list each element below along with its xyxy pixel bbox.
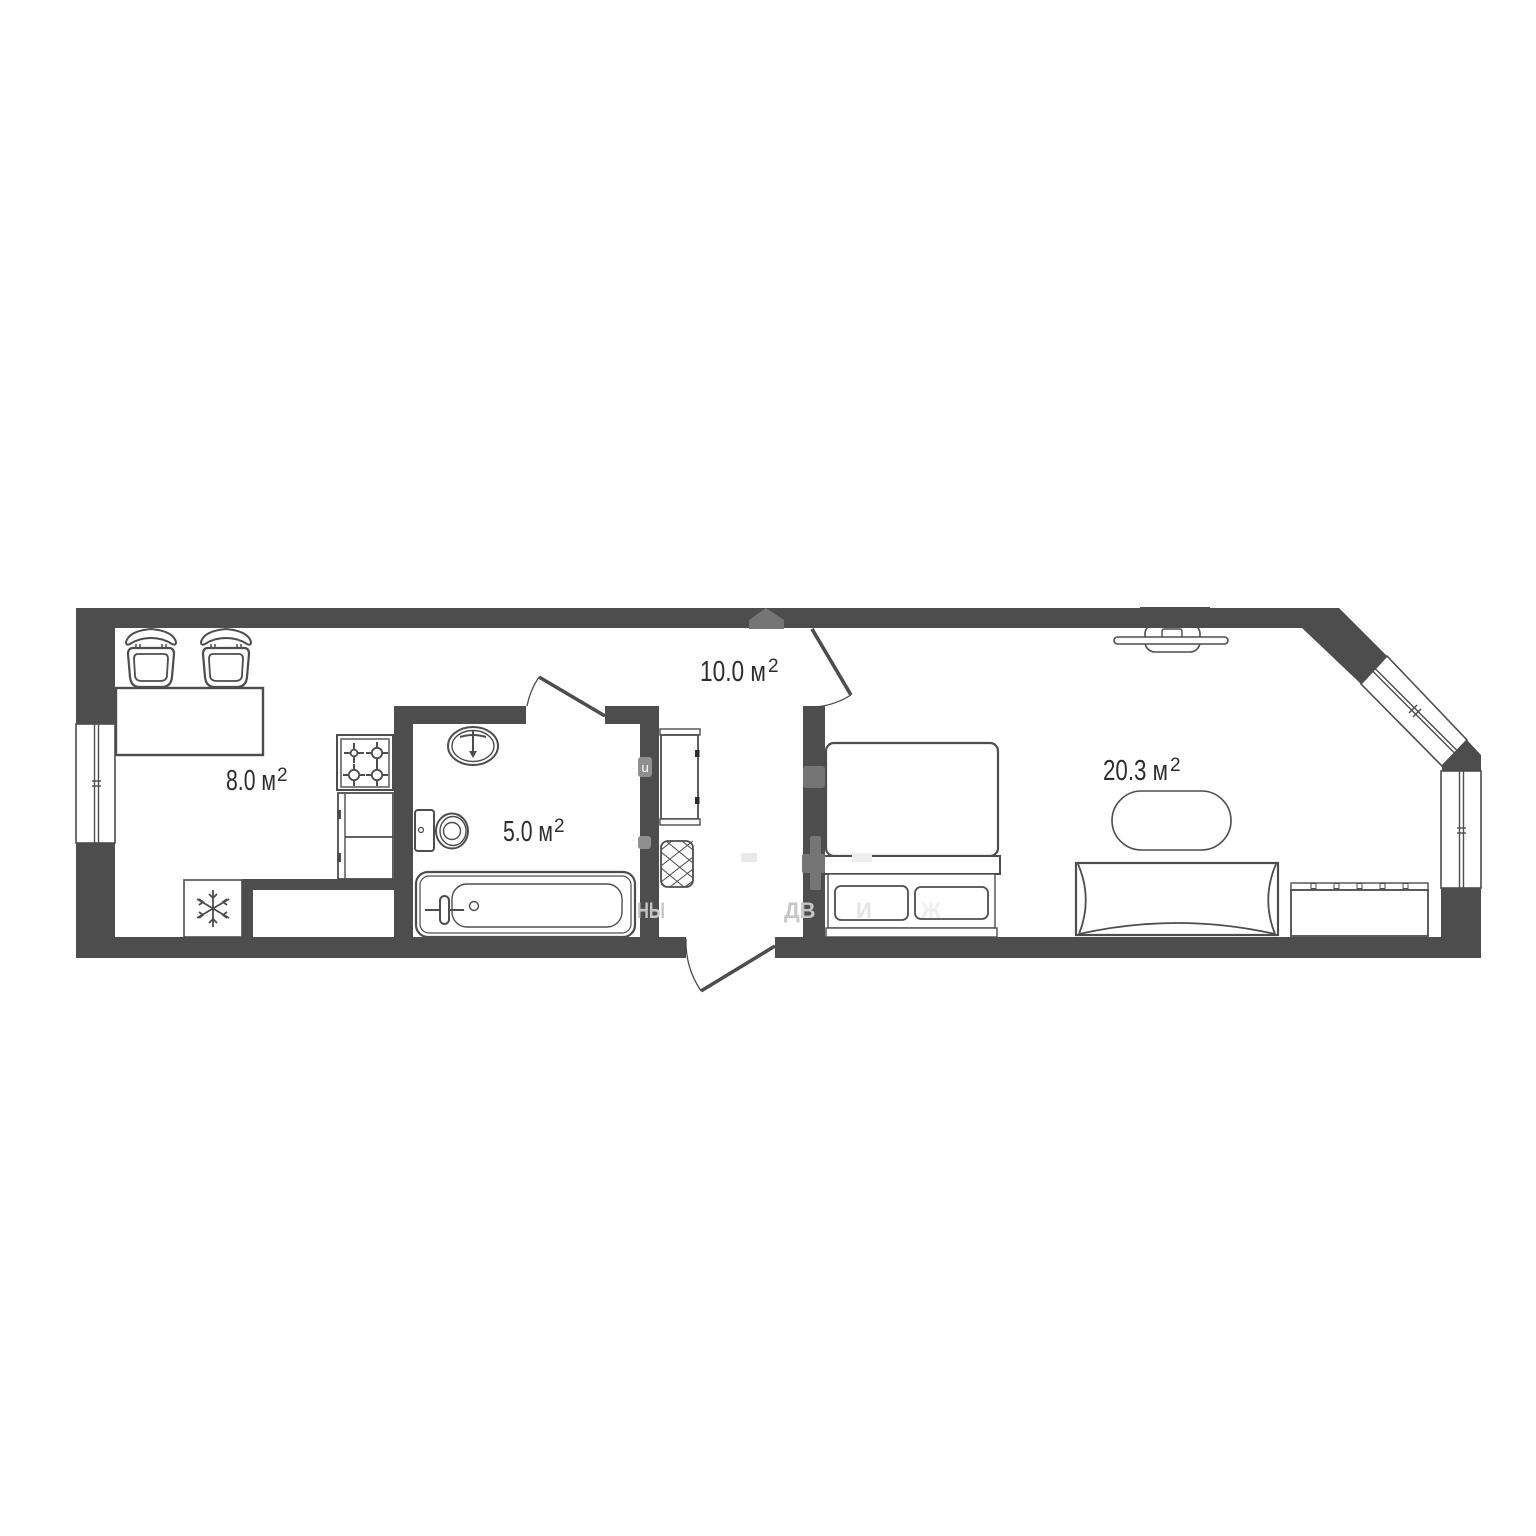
svg-text:5.0 м: 5.0 м (503, 816, 553, 848)
svg-text:20.3 м: 20.3 м (1103, 755, 1168, 787)
svg-text:8.0 м: 8.0 м (226, 765, 276, 797)
svg-text:НЫ: НЫ (637, 898, 665, 923)
svg-text:10.0 м: 10.0 м (700, 656, 766, 688)
svg-text:ДВ: ДВ (784, 898, 816, 923)
svg-text:2: 2 (1170, 755, 1181, 776)
svg-text:u: u (642, 760, 649, 775)
svg-text:2: 2 (768, 656, 779, 677)
svg-text:2: 2 (277, 765, 288, 786)
svg-text:И: И (856, 898, 872, 923)
svg-text:Ж: Ж (920, 898, 941, 923)
svg-text:2: 2 (554, 816, 565, 837)
